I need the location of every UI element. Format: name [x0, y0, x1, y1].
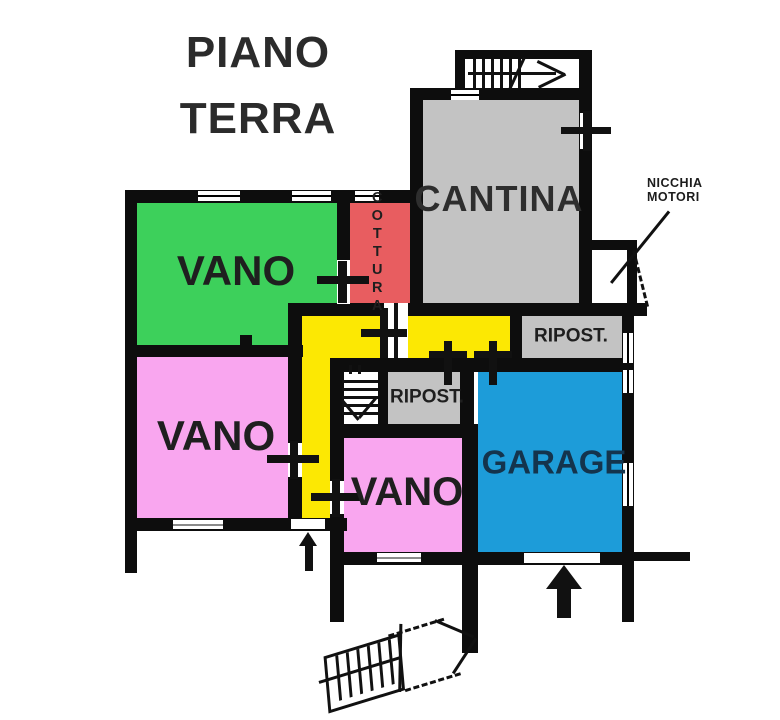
- room-label-ripost-mid: RIPOST.: [390, 388, 464, 407]
- window: [377, 553, 421, 562]
- window: [623, 370, 633, 393]
- stair-arrow-head: [538, 73, 566, 89]
- room-label-vano-pink-bottom: VANO: [351, 472, 464, 512]
- window: [292, 191, 331, 201]
- wall-thin-right: [634, 552, 690, 561]
- plan-title-line1: PIANO: [148, 20, 368, 86]
- wall-hall-west: [288, 303, 302, 520]
- room-label-garage: GARAGE: [482, 446, 627, 479]
- door-symbol: [444, 341, 452, 385]
- plan-title-line2: TERRA: [148, 86, 368, 152]
- stair-tick: [349, 365, 352, 374]
- wall-stub-right: [622, 565, 634, 622]
- wall-cantina-top: [410, 88, 592, 100]
- arrow-shaft: [557, 589, 571, 618]
- room-label-vano-pink-left: VANO: [157, 415, 275, 457]
- window: [173, 520, 223, 529]
- door-symbol: [338, 261, 347, 303]
- garage-door-opening: [524, 553, 600, 563]
- plan-title: PIANO TERRA: [148, 20, 368, 152]
- room-label-ripost-top: RIPOST.: [534, 327, 608, 346]
- nicchia-motori-label: NICCHIA MOTORI: [647, 177, 703, 204]
- nicchia-line1: NICCHIA: [647, 177, 703, 191]
- wall-door-stop-notch: [240, 335, 252, 345]
- wall-ripost-mid-bottom: [330, 424, 476, 438]
- floor-plan-canvas: PIANO TERRA: [0, 0, 780, 720]
- wall-pink-garage-divider: [462, 424, 478, 566]
- door-opening: [291, 519, 325, 529]
- arrow-head: [546, 565, 582, 589]
- wall-green-pink-divider: [125, 345, 303, 357]
- stair-arrow-head: [452, 637, 477, 674]
- door-symbol: [489, 341, 497, 385]
- window: [198, 191, 240, 201]
- window: [451, 90, 479, 100]
- wall-left: [125, 190, 137, 573]
- stair-tread: [342, 380, 378, 383]
- stair-arrow-shaft: [468, 72, 556, 75]
- window: [623, 333, 633, 363]
- door-symbol: [332, 479, 340, 517]
- room-label-cantina: CANTINA: [415, 181, 584, 217]
- nicchia-line2: MOTORI: [647, 191, 703, 205]
- stair-tread: [342, 388, 378, 391]
- door-symbol: [361, 329, 407, 337]
- door-symbol: [583, 111, 591, 151]
- external-staircase: [314, 606, 488, 715]
- room-label-cottura: COTTURA: [370, 190, 385, 316]
- room-label-vano-green: VANO: [177, 250, 295, 292]
- arrow-shaft: [305, 546, 313, 571]
- door-symbol: [290, 441, 298, 479]
- wall-corridor-bottom: [330, 358, 634, 372]
- stair-tick: [358, 365, 361, 374]
- corridor-vertical: [302, 315, 330, 518]
- arrow-head: [299, 532, 317, 546]
